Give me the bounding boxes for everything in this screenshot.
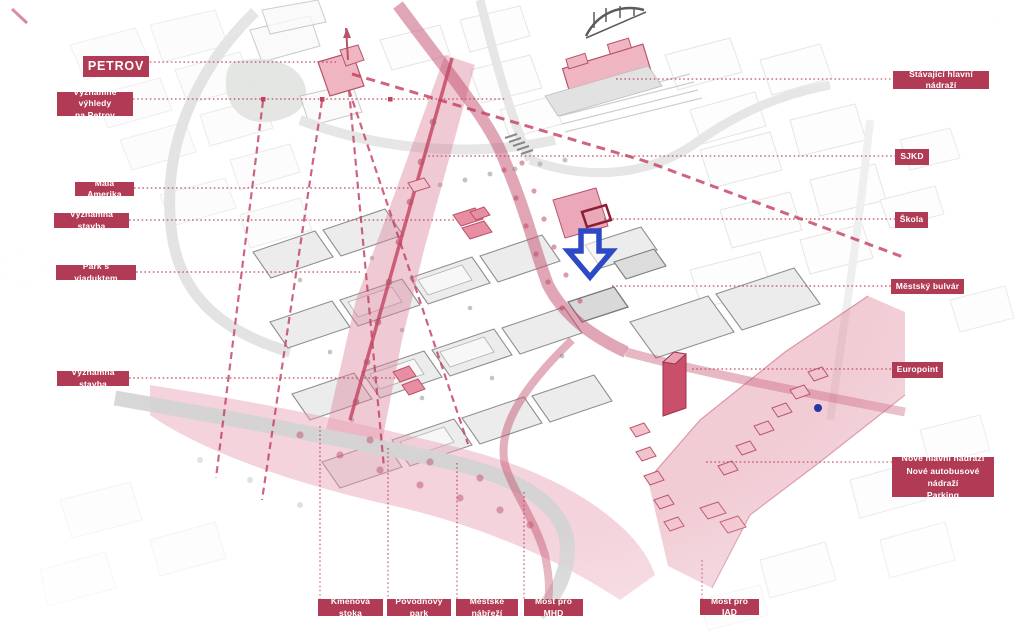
location-dot (814, 404, 822, 412)
corner-tick (12, 9, 27, 23)
callout-nove-nadrazi: Nové hlavní nádraží Nové autobusové nádr… (892, 457, 994, 497)
callout-povodnovy-park: Povodňový park (387, 599, 451, 616)
callout-stavajici-nadrazi: Stávající hlavní nádraží (893, 71, 989, 89)
callout-vyhledy-na-petrov: Významné výhledy na Petrov (57, 92, 133, 116)
callout-europoint: Europoint (892, 362, 943, 378)
callout-most-pro-mhd: Most pro MHD (524, 599, 583, 616)
callout-mala-amerika: Malá Amerika (75, 182, 134, 196)
callout-vyznamna-stavba-1: Významná stavba (54, 213, 129, 228)
petrov-cathedral (318, 28, 364, 96)
dark-viaduct-sketch (586, 6, 646, 38)
map-illustration (0, 0, 1024, 637)
callout-vyznamna-stavba-2: Významná stavba (57, 371, 129, 386)
callout-park-s-viaduktem: Park s viaduktem (56, 265, 136, 280)
masterplan-map: PETROV Významné výhledy na Petrov Malá A… (0, 0, 1024, 637)
callout-petrov: PETROV (83, 56, 149, 77)
callout-skola: Škola (895, 212, 928, 228)
callout-kmenova-stoka: Kmenová stoka (318, 599, 383, 616)
callout-mestsky-bulvar: Městský bulvár (891, 279, 964, 294)
callout-most-pro-iad: Most pro IAD (700, 599, 759, 615)
callout-sjkd: SJKD (895, 149, 929, 165)
callout-mestske-nabrezi: Městské nábřeží (456, 599, 518, 616)
europoint-tower (663, 352, 686, 416)
